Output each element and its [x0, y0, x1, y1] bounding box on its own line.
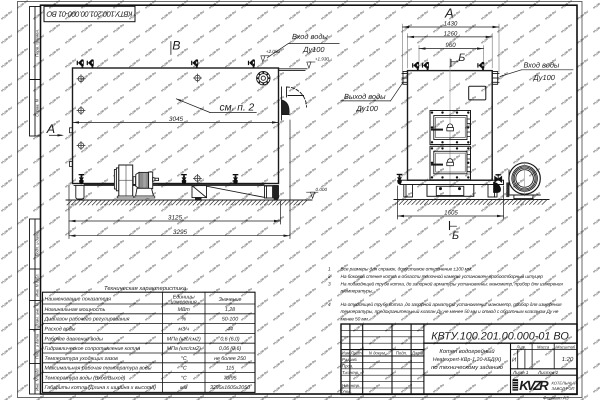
svg-text:960: 960 — [445, 42, 456, 49]
svg-text:115: 115 — [226, 366, 234, 372]
svg-text:Температура уходящих газов: Температура уходящих газов — [45, 356, 119, 362]
svg-text:Все размеры для справок, допус: Все размеры для справок, допустимое откл… — [341, 267, 473, 273]
svg-text:Н.контр.: Н.контр. — [342, 383, 360, 388]
svg-text:1,28: 1,28 — [225, 307, 235, 313]
svg-text:Масса: Масса — [537, 344, 550, 349]
svg-text:м3/ч: м3/ч — [178, 327, 189, 333]
svg-text:Выход воды: Выход воды — [344, 92, 386, 101]
svg-text:3295: 3295 — [173, 229, 188, 236]
svg-text:0,06 (0,6): 0,06 (0,6) — [219, 346, 241, 352]
svg-text:температуры, предохранительный: температуры, предохранительный клапан Ду… — [341, 309, 559, 315]
svg-text:В: В — [172, 39, 180, 53]
svg-text:+1.930: +1.930 — [315, 57, 330, 62]
svg-text:44: 44 — [227, 327, 233, 333]
svg-text:Формат А3: Формат А3 — [543, 395, 569, 400]
svg-text:ЗАВОД РЭП: ЗАВОД РЭП — [552, 386, 575, 391]
svg-text:Изм.Лист: Изм.Лист — [342, 351, 363, 356]
svg-text:Утв.: Утв. — [342, 389, 352, 394]
svg-text:Лит.: Лит. — [516, 344, 527, 349]
svg-text:Ду100: Ду100 — [356, 104, 379, 113]
svg-text:Взам. инв. N: Взам. инв. N — [35, 303, 40, 326]
svg-text:измерения: измерения — [171, 300, 197, 306]
svg-text:На боковой стенке котла в обла: На боковой стенке котла в области топочн… — [341, 274, 544, 280]
svg-text:МПа (кгс/см2): МПа (кгс/см2) — [167, 336, 201, 342]
svg-text:Подп.: Подп. — [396, 351, 407, 356]
svg-text:Вход воды: Вход воды — [524, 61, 560, 70]
svg-text:KVZR: KVZR — [519, 378, 549, 393]
svg-text:см. п. 2: см. п. 2 — [220, 103, 255, 114]
svg-text:мм: мм — [180, 385, 188, 391]
svg-text:Подп. и дата: Подп. и дата — [35, 231, 40, 257]
svg-text:Дата: Дата — [411, 351, 424, 356]
svg-text:Разраб.: Разраб. — [342, 357, 358, 362]
svg-text:Heatexpert-КВр-1,20-КБД(К): Heatexpert-КВр-1,20-КБД(К) — [433, 357, 502, 363]
svg-text:Значение: Значение — [219, 297, 242, 303]
svg-text:1430: 1430 — [444, 20, 458, 27]
svg-text:50-100: 50-100 — [222, 317, 238, 323]
svg-text:На отводящей трубе котла ,до з: На отводящей трубе котла ,до запорной ар… — [341, 302, 563, 308]
svg-text:Б: Б — [452, 230, 459, 242]
svg-text:+2.050: +2.050 — [266, 49, 281, 54]
svg-text:3295х1605х2050: 3295х1605х2050 — [210, 385, 250, 391]
svg-text:Т.контр.: Т.контр. — [342, 370, 359, 375]
svg-text:Подп. и дата: Подп. и дата — [35, 333, 40, 359]
svg-text:Листов 2: Листов 2 — [537, 370, 559, 375]
svg-text:МВт: МВт — [178, 307, 191, 313]
svg-text:Пров.: Пров. — [342, 364, 353, 369]
svg-text:°С: °С — [181, 375, 187, 381]
svg-text:Инв. N подл.: Инв. N подл. — [35, 367, 40, 390]
svg-text:А: А — [444, 5, 454, 20]
svg-text:°С: °С — [181, 366, 187, 372]
svg-text:температуры.: температуры. — [341, 290, 374, 295]
svg-text:Наименование показателя: Наименование показателя — [45, 297, 112, 303]
svg-text:1605: 1605 — [444, 209, 458, 216]
svg-text:не более 250: не более 250 — [214, 356, 246, 362]
svg-text:N докум.: N докум. — [369, 351, 386, 356]
svg-text:На подводящей трубе котла, д: На подводящей трубе котла, до запорной а… — [341, 281, 564, 287]
svg-text:1:20: 1:20 — [562, 356, 574, 363]
svg-text:Лист 1: Лист 1 — [512, 370, 529, 375]
svg-text:70/95: 70/95 — [223, 375, 236, 381]
svg-text:Габариты котла (Длина х ширина: Габариты котла (Длина х ширина х высота) — [45, 385, 157, 391]
svg-text:1: 1 — [328, 267, 331, 273]
svg-text:Расход воды: Расход воды — [45, 327, 76, 333]
svg-text:Справ. N: Справ. N — [35, 98, 40, 116]
svg-text:Диапазон рабочего регулировани: Диапазон рабочего регулирования — [44, 317, 130, 323]
svg-text:0.000: 0.000 — [316, 187, 328, 192]
svg-text:Ду100: Ду100 — [302, 45, 325, 54]
svg-text:4: 4 — [328, 302, 331, 308]
svg-text:Температура воды (Вход/Выход): Температура воды (Вход/Выход) — [45, 375, 126, 381]
svg-text:Номинальная мощность: Номинальная мощность — [45, 307, 106, 313]
svg-text:МПа (кгс/см2): МПа (кгс/см2) — [167, 346, 201, 352]
svg-text:2: 2 — [327, 274, 331, 280]
svg-text:Инв. N дубл.: Инв. N дубл. — [35, 273, 40, 296]
svg-text:Б: Б — [458, 52, 465, 64]
svg-text:А: А — [46, 122, 55, 136]
svg-text:3: 3 — [328, 281, 331, 287]
svg-text:3125: 3125 — [168, 214, 183, 221]
svg-text:°С: °С — [181, 356, 187, 362]
svg-text:%: % — [181, 317, 186, 323]
svg-text:3045: 3045 — [169, 116, 184, 123]
svg-text:Техническая характеристика: Техническая характеристика — [104, 286, 187, 292]
svg-text:Перв. примен.: Перв. примен. — [35, 29, 40, 57]
svg-text:1260: 1260 — [444, 30, 458, 37]
svg-text:Рабочее давление воды: Рабочее давление воды — [45, 336, 103, 342]
svg-text:Гидравлическое сопротивление к: Гидравлическое сопротивление котла — [45, 346, 141, 352]
svg-text:0,6 (6,0): 0,6 (6,0) — [220, 336, 240, 342]
svg-text:Масштаб: Масштаб — [556, 344, 576, 349]
svg-text:КВТУ.100.201.00.000-01 ВО: КВТУ.100.201.00.000-01 ВО — [431, 331, 569, 343]
svg-text:Котел водогрейный: Котел водогрейный — [439, 348, 495, 355]
svg-text:менее 50 мм.: менее 50 мм. — [341, 316, 369, 322]
svg-text:по техническому заданию: по техническому заданию — [431, 364, 503, 371]
svg-text:Вход воды: Вход воды — [292, 32, 328, 41]
svg-text:Ду100: Ду100 — [533, 73, 556, 82]
svg-text:КВТУ.100.201.00.000-01 ВО: КВТУ.100.201.00.000-01 ВО — [46, 9, 132, 18]
svg-text:Максимальная рабочая температу: Максимальная рабочая температура воды — [45, 366, 152, 372]
